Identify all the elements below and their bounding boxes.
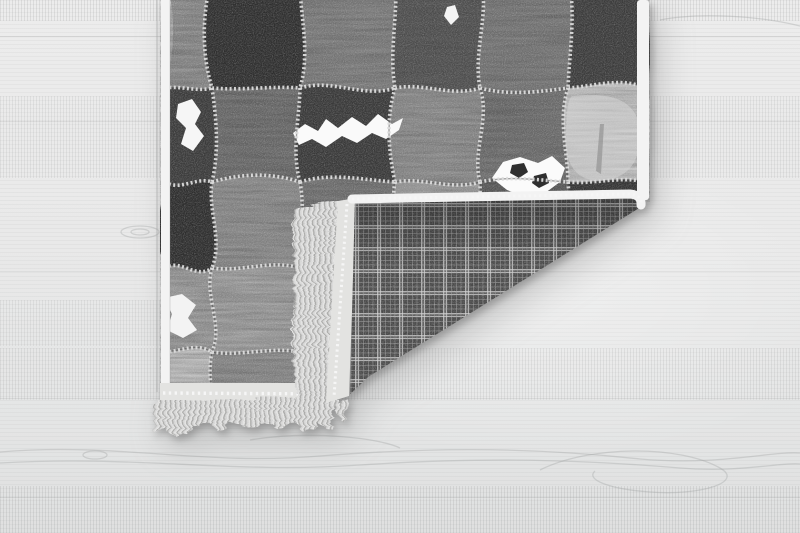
leather-patch [478,349,571,436]
stitch-seam [568,267,646,269]
stitch-seam-base [568,350,646,354]
stitch-seam-base [480,349,568,352]
stitch-seam [480,349,568,352]
plaid-fold-highlight [340,185,660,405]
stitch-seam-base [566,268,571,352]
product-photo: Product photo: grayscale patchwork leath… [0,0,800,533]
stitch-seam [564,352,570,434]
stitch-seam [566,268,571,352]
rug-border-left [161,0,170,384]
stitch-seam [478,352,483,434]
leather-patch [564,350,646,437]
leather-patch [395,348,483,439]
leather-patch [566,267,649,354]
stitch-seam [568,350,646,354]
stitch-seam-base [478,352,483,434]
plaid-texture-group [340,185,660,405]
stitch-seam-base [395,352,401,434]
patchwork-rug [0,0,800,533]
rug-root [152,0,660,439]
stitch-seam-base [568,267,646,269]
stitch-seam-base [564,352,570,434]
stitch-seam [395,352,401,434]
rug-border-right [637,0,649,200]
rug-folded-corner [290,185,660,421]
